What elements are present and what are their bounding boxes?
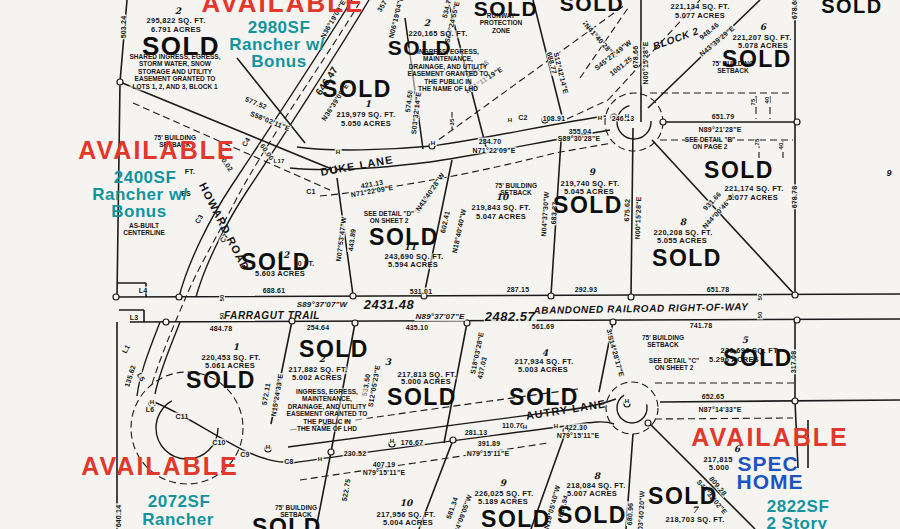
dimension-label: L6 — [145, 406, 156, 413]
dimension-label: N79°15'11"E — [466, 450, 511, 457]
dimension-label: H — [522, 424, 529, 430]
lot-bottom-lot1-status-sold: SOLD — [186, 369, 256, 392]
note-detail-c: SEE DETAIL "C"ON SHEET 2 — [649, 357, 699, 372]
lot-top-lot8-number: 8 — [680, 218, 686, 227]
lot-block2-lot6-number: 6 — [760, 23, 766, 32]
lot-bottom-lot8-status-sold: SOLD — [557, 504, 627, 527]
dimension-label: 435.10 — [405, 324, 430, 331]
top-available-available-label: AVAILABLE — [202, 0, 365, 16]
dimension-label: H — [597, 115, 604, 121]
dimension-label: 407.19 — [372, 461, 397, 468]
left-available-bonus-label: Bonus — [111, 203, 166, 220]
culdesac-bottom-right-dashed — [606, 382, 658, 434]
lot-lot12-status-sold: SOLD — [241, 251, 311, 274]
lot-bottom-lot8-acres: 5.007 ACRES — [567, 490, 617, 498]
lot-lot11-status-sold: SOLD — [369, 226, 439, 249]
dimension-label: C1 — [305, 188, 316, 195]
lot-bottom-lot7-area: 218,703 SQ. FT. — [665, 516, 724, 524]
note-detail-b: SEE DETAIL "B"ON PAGE 2 — [685, 136, 735, 151]
dimension-label: N79°15'11"E — [362, 469, 407, 476]
lot-bottom-lot6-acres: 5.000 — [709, 464, 729, 472]
dimension-label: S89°37'07"W — [296, 301, 349, 309]
dimension-label: 281.13 — [464, 429, 489, 436]
dimension-label: 40 — [764, 95, 770, 104]
dimension-label: 678.66 — [632, 45, 639, 70]
dimension-label: 422.30 — [564, 424, 589, 431]
top-available-bonus-label: Bonus — [251, 53, 306, 70]
lot-block1-lot2-area: 295,822 SQ. FT. — [146, 17, 205, 25]
dimension-label: C10 — [211, 439, 226, 446]
dimension-label: 50 — [757, 292, 763, 301]
dimension-label: 391.89 — [477, 440, 502, 447]
dimension-label: C8 — [283, 458, 294, 465]
bottom-left-available-available-label: AVAILABLE — [81, 454, 238, 479]
lot-top-lot5-acres: 5.077 ACRES — [728, 194, 778, 202]
lot-bottom-lot1-number: 1 — [233, 343, 239, 352]
lot-top-lot9-number: 9 — [589, 168, 595, 177]
lot-block2-lot6-status-sold: SOLD — [722, 48, 792, 71]
lot-block2-lot7-acres: 5.077 ACRES — [675, 12, 725, 20]
dimension-label: 75 — [754, 137, 760, 146]
lot-block1-lot2-mid-status-sold: SOLD — [388, 37, 452, 58]
dimension-label: 2431.48 — [363, 298, 416, 311]
dimension-label: H — [430, 140, 437, 146]
lot-bottom-lot5-number: 5 — [742, 336, 748, 345]
bottom-left-available-rancher-label: Rancher — [142, 511, 214, 528]
dimension-label: H — [335, 149, 342, 155]
left-available-rancher-w--label: Rancher w/ — [92, 186, 188, 203]
lot-bottom-lot2-acres: 5.002 ACRES — [292, 374, 342, 382]
dimension-label: H — [624, 113, 631, 119]
lot-bottom-sw-lot-status-sold: SOLD — [252, 516, 322, 529]
dimension-label: 355.04 — [568, 128, 593, 135]
lot-block1-lot1-area: 219,979 SQ. FT. — [336, 111, 395, 119]
top-available-rancher-w--label: Rancher w/ — [229, 36, 325, 53]
dimension-label: 50 — [219, 293, 225, 302]
dimension-label: FT. — [184, 168, 196, 175]
lot-bottom-lot10-number: 10 — [400, 499, 413, 508]
dimension-label: H — [624, 398, 631, 404]
street-name-farragut-trail: FARRAGUT TRAIL — [224, 311, 320, 321]
lot-bottom-lot4-number: 4 — [542, 349, 548, 358]
dimension-label: 678.68 — [791, 0, 798, 20]
bottom-left-available-2072sf-label: 2072SF — [148, 493, 211, 510]
lot-bottom-lot10-acres: 5.004 ACRES — [383, 519, 433, 527]
dimension-label: 40 — [778, 141, 784, 150]
dimension-label: 688.61 — [262, 287, 287, 294]
dimension-label: N79°15'11"E — [556, 432, 601, 439]
dimension-label: 75 — [750, 97, 756, 106]
dimension-label: C2 — [517, 114, 528, 121]
dimension-label: L4 — [138, 287, 149, 294]
lot-top-lot10-area: 219,843 SQ. FT. — [471, 204, 530, 212]
lot-top-lot5-status-sold: SOLD — [704, 159, 774, 182]
lot-top-lot9-status-sold: SOLD — [553, 194, 623, 217]
left-available-2400sf-label: 2400SF — [114, 169, 177, 186]
culdesac-top-dashed — [605, 93, 663, 151]
lot-bottom-lot9-status-sold: SOLD — [481, 508, 551, 529]
lot-top-cut-lot-status-sold: SOLD — [560, 0, 624, 14]
dimension-label: H — [317, 456, 324, 462]
dimension-label: N00°15'28"E — [642, 40, 649, 85]
left-available-available-label: AVAILABLE — [78, 138, 235, 163]
dimension-label: 108.91 — [542, 115, 567, 122]
note-setback-lot5: 75' BUILDINGSETBACK — [642, 334, 684, 349]
dimension-label: 678.78 — [791, 185, 798, 210]
lot-bottom-lot9-number: 9 — [500, 479, 506, 488]
lot-bottom-lot2-status-sold: SOLD — [299, 338, 369, 361]
lot-block1-lot1-status-sold: SOLD — [322, 78, 392, 101]
lot-top-lot10-acres: 5.047 ACRES — [476, 213, 526, 221]
dimension-label: S89°30'28"E — [557, 135, 602, 142]
dimension-label: 287.15 — [506, 286, 531, 293]
dimension-label: H — [265, 444, 272, 450]
lot-top-lot5-area: 221,174 SQ. FT. — [724, 185, 783, 193]
dimension-label: 254.64 — [306, 324, 331, 331]
note-as-built-centerline: AS-BUILTCENTERLINE — [123, 222, 165, 237]
bottom-right-available-available-label: AVAILABLE — [691, 425, 848, 450]
lot-top-lot10-number: 10 — [496, 193, 509, 202]
dimension-label: 531.01 — [409, 288, 434, 295]
top-available-2980sf-label: 2980SF — [248, 19, 311, 36]
dimension-label: N89°21'28"E — [697, 126, 742, 133]
dimension-label: 176.67 — [400, 439, 425, 446]
dimension-label: 640.14 — [115, 504, 122, 529]
dimension-label: C11 — [174, 413, 189, 420]
lot-block1-lot1-acres: 5.050 ACRES — [341, 120, 391, 128]
dimension-label: 651.79 — [711, 113, 736, 120]
lot-block1-lot2-status-sold: SOLD — [142, 33, 220, 59]
dimension-label: 2482.57 — [484, 310, 537, 323]
dimension-label: 675.62 — [623, 198, 631, 223]
dimension-label: 652.65 — [701, 393, 726, 400]
lot-bottom-lot7-status-sold: SOLD — [648, 485, 718, 508]
dimension-label: 230.52 — [343, 450, 368, 457]
dimension-label: H — [389, 438, 396, 444]
lot-bottom-lot4-status-sold: SOLD — [509, 386, 579, 409]
bottom-right-available-2822sf-label: 2822SF — [767, 498, 830, 515]
plat-map: 503.24577.52S58°02'11"E646.47N36°39'09"E… — [0, 0, 900, 529]
dimension-label: H — [507, 117, 514, 123]
lot-block1-lot2-mid-number: 2 — [424, 19, 430, 28]
dimension-label: 292.93 — [574, 286, 599, 293]
dimension-label: 9 — [885, 169, 892, 178]
bottom-right-available-home-label: HOME — [737, 471, 804, 492]
lot-block2-lot7-area: 221,134 SQ. FT. — [670, 3, 729, 11]
lot-top-lot8-status-sold: SOLD — [652, 247, 722, 270]
dimension-label: N87°14'33"E — [697, 406, 742, 413]
dimension-label: 284.70 — [478, 138, 503, 145]
lot-runway-lot-status-sold: SOLD — [474, 0, 538, 19]
dimension-label: 561.69 — [531, 323, 556, 330]
dimension-label: L3 — [129, 314, 140, 321]
dimension-label: 741.78 — [689, 322, 714, 329]
lot-bottom-lot5-status-sold: SOLD — [723, 347, 793, 370]
dimension-label: 503.24 — [120, 15, 127, 40]
dimension-label: N89°37'07"E — [415, 313, 466, 321]
dimension-label: H — [149, 399, 156, 405]
lot-bottom-lot3-number: 3 — [385, 358, 391, 367]
lot-bottom-lot4-acres: 5.003 ACRES — [518, 366, 568, 374]
dimension-label: 680.96 — [626, 502, 634, 527]
dimension-label: 651.78 — [706, 286, 731, 293]
dimension-label: L17 — [273, 158, 286, 164]
note-detail-d: SEE DETAIL "D"ON SHEET 2 — [364, 210, 414, 225]
dimension-label: 35 — [449, 117, 455, 126]
lot-block1-lot2-number: 2 — [175, 7, 181, 16]
note-public-easement-bottom: INGRESS, EGRESS,MAINTENANCE,DRAINAGE, AN… — [287, 388, 368, 432]
bottom-right-available-2-story-label: 2 Story — [766, 515, 827, 529]
dimension-label: 484.78 — [209, 325, 234, 332]
lot-lot11-acres: 5.594 ACRES — [388, 261, 438, 269]
lot-block2-lot7-status-sold: SOLD — [821, 0, 883, 16]
dimension-label: 50 — [757, 310, 763, 319]
dimension-label: H — [553, 423, 560, 429]
dimension-label: N71°22'09"E — [471, 147, 516, 154]
dimension-label: C9 — [239, 451, 250, 458]
lot-bottom-lot3-status-sold: SOLD — [387, 386, 457, 409]
lot-bottom-lot8-number: 8 — [594, 472, 600, 481]
